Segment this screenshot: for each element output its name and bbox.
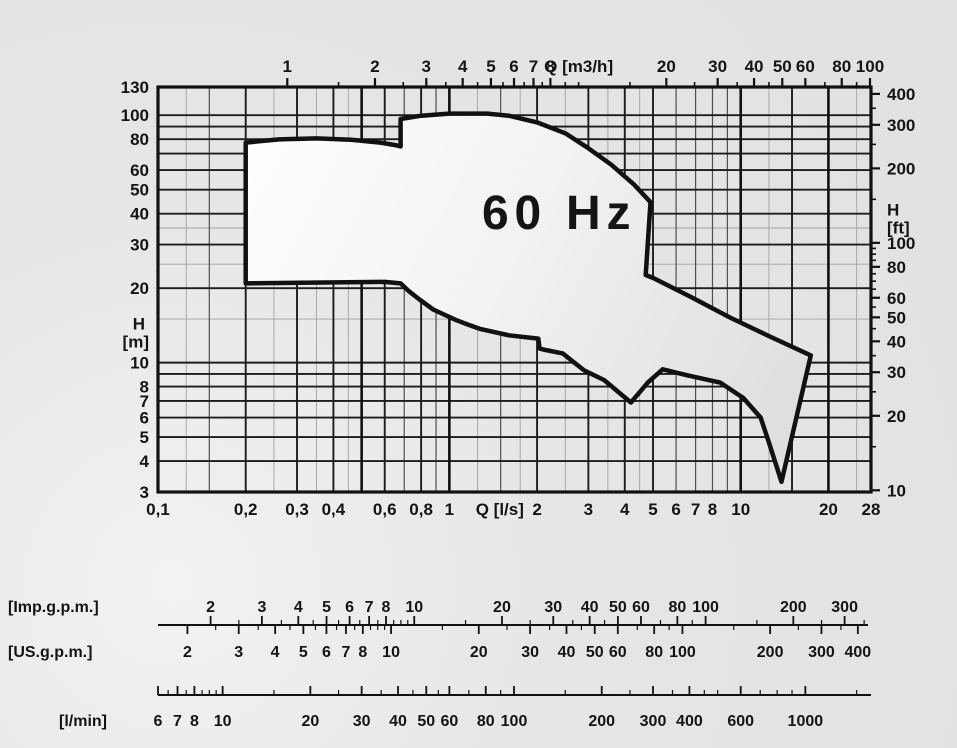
axis-top-tick-label: 40: [745, 57, 764, 76]
ruler-tick-label: 40: [558, 644, 576, 661]
axis-left-unit-label: [m]: [123, 332, 149, 351]
axis-right: 40030020010080605040302010H[ft]: [871, 85, 915, 500]
axis-left-tick-label: 130: [121, 78, 149, 97]
axis-top-tick-label: 2: [370, 57, 379, 76]
axis-bottom-tick-label: 10: [731, 500, 750, 519]
axis-bottom-tick-label: 5: [648, 500, 657, 519]
axis-bottom: 0,10,20,30,40,60,812345678102028Q [l/s]: [146, 500, 880, 519]
axis-left-tick-label: 60: [130, 161, 149, 180]
ruler-tick-label: 80: [477, 713, 495, 730]
ruler-tick-label: 200: [757, 644, 784, 661]
ruler-tick-label: 5: [299, 644, 308, 661]
ruler-tick-label: 10: [405, 599, 423, 616]
ruler-tick-label: 40: [389, 713, 407, 730]
axis-bottom-tick-label: 4: [620, 500, 630, 519]
ruler-lmin-caption: [l/min]: [59, 713, 107, 730]
axis-bottom-tick-label: 0,3: [285, 500, 309, 519]
axis-left-tick-label: 5: [140, 428, 149, 447]
ruler-tick-label: 7: [365, 599, 374, 616]
ruler-tick-label: 20: [470, 644, 488, 661]
axis-top: 12345678203040506080100Q [m3/h]: [283, 57, 885, 87]
axis-left-tick-label: 30: [130, 236, 149, 255]
ruler-tick-label: 10: [214, 713, 232, 730]
ruler-tick-label: 50: [586, 644, 604, 661]
axis-bottom-tick-label: 2: [532, 500, 541, 519]
axis-left: 13010080605040302010876543H[m]: [121, 78, 150, 502]
axis-top-tick-label: 3: [422, 57, 431, 76]
axis-right-tick-label: 20: [887, 407, 906, 426]
axis-bottom-tick-label: 0,4: [322, 500, 346, 519]
axis-bottom-tick-label: 20: [819, 500, 838, 519]
ruler-tick-label: 30: [544, 599, 562, 616]
ruler-imp-caption: [Imp.g.p.m.]: [8, 599, 99, 616]
axis-bottom-tick-label: 1: [445, 500, 454, 519]
axis-bottom-tick-label: 7: [691, 500, 700, 519]
axis-left-tick-label: 40: [130, 205, 149, 224]
ruler-tick-label: 6: [322, 644, 331, 661]
ruler-tick-label: 200: [780, 599, 807, 616]
ruler-tick-label: 1000: [788, 713, 824, 730]
axis-right-tick-label: 60: [887, 289, 906, 308]
ruler-us-caption: [US.g.p.m.]: [8, 644, 92, 661]
axis-top-tick-label: 50: [773, 57, 792, 76]
axis-right-tick-label: 40: [887, 332, 906, 351]
axis-bottom-tick-label: 28: [862, 500, 881, 519]
ruler-tick-label: 6: [154, 713, 163, 730]
ruler-tick-label: 60: [609, 644, 627, 661]
axis-top-tick-label: 80: [832, 57, 851, 76]
axis-top-tick-label: 4: [458, 57, 468, 76]
ruler-tick-label: 200: [588, 713, 615, 730]
axis-right-tick-label: 10: [887, 481, 906, 500]
ruler-tick-label: 100: [669, 644, 696, 661]
ruler-tick-label: 10: [382, 644, 400, 661]
ruler-gpm: 2345678102030405060801002003002345678102…: [8, 599, 871, 661]
ruler-tick-label: 40: [581, 599, 599, 616]
ruler-tick-label: 30: [521, 644, 539, 661]
axis-right-tick-label: 300: [887, 116, 915, 135]
axis-top-tick-label: 20: [657, 57, 676, 76]
axis-bottom-tick-label: 0,8: [409, 500, 433, 519]
ruler-tick-label: 30: [353, 713, 371, 730]
axis-top-tick-label: 5: [486, 57, 495, 76]
axis-left-tick-label: 50: [130, 181, 149, 200]
axis-left-tick-label: 20: [130, 279, 149, 298]
axis-bottom-tick-label: 0,2: [234, 500, 258, 519]
axis-bottom-tick-label: 3: [584, 500, 593, 519]
ruler-tick-label: 6: [345, 599, 354, 616]
ruler-tick-label: 300: [808, 644, 835, 661]
ruler-tick-label: 100: [501, 713, 528, 730]
axis-bottom-tick-label: 0,1: [146, 500, 170, 519]
ruler-tick-label: 300: [640, 713, 667, 730]
axis-top-tick-label: 6: [509, 57, 518, 76]
ruler-tick-label: 20: [301, 713, 319, 730]
page: 12345678203040506080100Q [m3/h]0,10,20,3…: [0, 0, 957, 748]
axis-top-tick-label: 7: [529, 57, 538, 76]
axis-top-tick-label: 1: [283, 57, 292, 76]
axis-left-tick-label: 3: [140, 483, 149, 502]
axis-bottom-tick-label: 8: [708, 500, 717, 519]
ruler-lmin: 678102030405060801002003004006001000[l/m…: [59, 686, 871, 730]
axis-top-tick-label: 100: [856, 57, 884, 76]
ruler-tick-label: 2: [183, 644, 192, 661]
ruler-tick-label: 8: [358, 644, 367, 661]
axis-left-unit-label: H: [133, 314, 145, 333]
axis-left-tick-label: 4: [140, 452, 150, 471]
ruler-tick-label: 5: [322, 599, 331, 616]
ruler-tick-label: 2: [206, 599, 215, 616]
ruler-tick-label: 400: [676, 713, 703, 730]
chart-title: 60 Hz: [482, 187, 632, 240]
axis-right-tick-label: 200: [887, 159, 915, 178]
ruler-tick-label: 20: [493, 599, 511, 616]
ruler-tick-label: 400: [844, 644, 871, 661]
axis-left-tick-label: 100: [121, 106, 149, 125]
ruler-tick-label: 100: [692, 599, 719, 616]
axis-right-unit-label: [ft]: [887, 218, 910, 237]
ruler-tick-label: 8: [382, 599, 391, 616]
ruler-tick-label: 300: [831, 599, 858, 616]
axis-left-tick-label: 10: [130, 354, 149, 373]
ruler-tick-label: 3: [234, 644, 243, 661]
axis-left-tick-label: 6: [140, 409, 149, 428]
axis-right-tick-label: 30: [887, 363, 906, 382]
axis-right-tick-label: 400: [887, 85, 915, 104]
axis-right-tick-label: 50: [887, 308, 906, 327]
performance-envelope: [246, 114, 811, 482]
ruler-tick-label: 7: [341, 644, 350, 661]
ruler-tick-label: 3: [257, 599, 266, 616]
ruler-tick-label: 80: [668, 599, 686, 616]
ruler-tick-label: 7: [173, 713, 182, 730]
axis-bottom-tick-label: 6: [671, 500, 680, 519]
axis-bottom-unit-label: Q [l/s]: [476, 500, 524, 519]
pump-envelope-chart: 12345678203040506080100Q [m3/h]0,10,20,3…: [0, 0, 957, 748]
ruler-tick-label: 60: [632, 599, 650, 616]
axis-left-tick-label: 80: [130, 130, 149, 149]
ruler-tick-label: 4: [294, 599, 303, 616]
axis-top-unit-label: Q [m3/h]: [544, 57, 613, 76]
ruler-tick-label: 4: [271, 644, 280, 661]
ruler-tick-label: 600: [727, 713, 754, 730]
axis-top-tick-label: 30: [708, 57, 727, 76]
ruler-tick-label: 8: [190, 713, 199, 730]
ruler-tick-label: 60: [440, 713, 458, 730]
ruler-tick-label: 50: [609, 599, 627, 616]
axis-right-unit-label: H: [887, 200, 899, 219]
axis-right-tick-label: 80: [887, 258, 906, 277]
axis-top-tick-label: 60: [796, 57, 815, 76]
ruler-tick-label: 80: [645, 644, 663, 661]
axis-bottom-tick-label: 0,6: [373, 500, 397, 519]
ruler-tick-label: 50: [417, 713, 435, 730]
